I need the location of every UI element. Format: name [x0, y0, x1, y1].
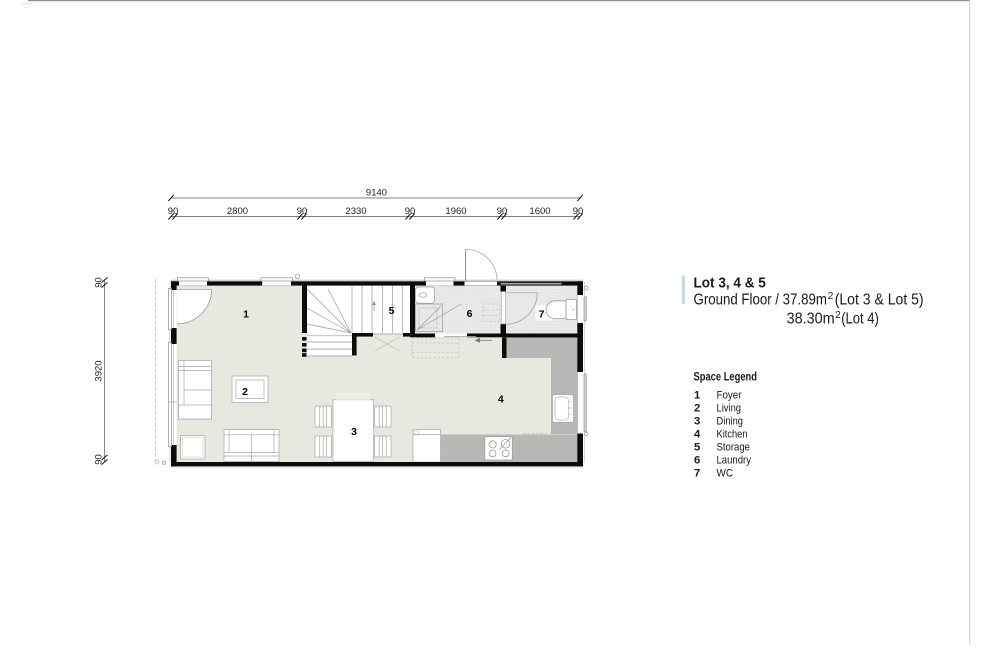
svg-text:(Lot 3 & Lot 5): (Lot 3 & Lot 5): [835, 292, 924, 309]
svg-text:90: 90: [405, 206, 416, 217]
svg-text:90: 90: [297, 206, 308, 217]
svg-text:1: 1: [243, 309, 249, 321]
svg-text:2: 2: [694, 403, 700, 415]
svg-text:3: 3: [694, 416, 700, 428]
svg-text:9140: 9140: [366, 188, 387, 199]
svg-text:6: 6: [694, 454, 700, 466]
svg-text:2: 2: [242, 386, 248, 398]
svg-text:90: 90: [497, 206, 508, 217]
svg-text:90: 90: [94, 454, 105, 465]
svg-text:1960: 1960: [445, 206, 466, 217]
svg-text:Kitchen: Kitchen: [717, 429, 748, 441]
svg-text:7: 7: [694, 467, 700, 479]
svg-text:4: 4: [694, 429, 701, 441]
svg-text:6: 6: [467, 308, 473, 320]
svg-text:90: 90: [168, 206, 179, 217]
svg-text:2330: 2330: [345, 206, 366, 217]
svg-text:Laundry: Laundry: [717, 454, 752, 466]
svg-text:Foyer: Foyer: [717, 390, 742, 402]
svg-text:Lot 3, 4 & 5: Lot 3, 4 & 5: [694, 275, 766, 291]
svg-text:4: 4: [498, 393, 504, 405]
svg-text:1: 1: [694, 390, 700, 402]
svg-text:Living: Living: [717, 403, 742, 415]
svg-text:38.30m: 38.30m: [787, 311, 835, 328]
svg-text:Space Legend: Space Legend: [694, 370, 758, 384]
svg-text:3920: 3920: [94, 360, 105, 381]
svg-text:Storage: Storage: [717, 442, 751, 454]
svg-text:7: 7: [539, 309, 545, 321]
svg-text:Dining: Dining: [717, 416, 744, 428]
svg-text:WC: WC: [717, 467, 734, 479]
svg-text:1600: 1600: [529, 206, 550, 217]
svg-text:90: 90: [573, 206, 584, 217]
svg-text:2800: 2800: [227, 206, 248, 217]
svg-text:3: 3: [351, 426, 357, 438]
svg-text:5: 5: [694, 442, 700, 454]
svg-text:Ground Floor / 37.89m: Ground Floor / 37.89m: [694, 292, 827, 309]
svg-text:5: 5: [389, 305, 395, 317]
svg-text:90: 90: [94, 277, 105, 288]
svg-text:(Lot 4): (Lot 4): [841, 311, 879, 328]
svg-text:2: 2: [828, 291, 834, 302]
